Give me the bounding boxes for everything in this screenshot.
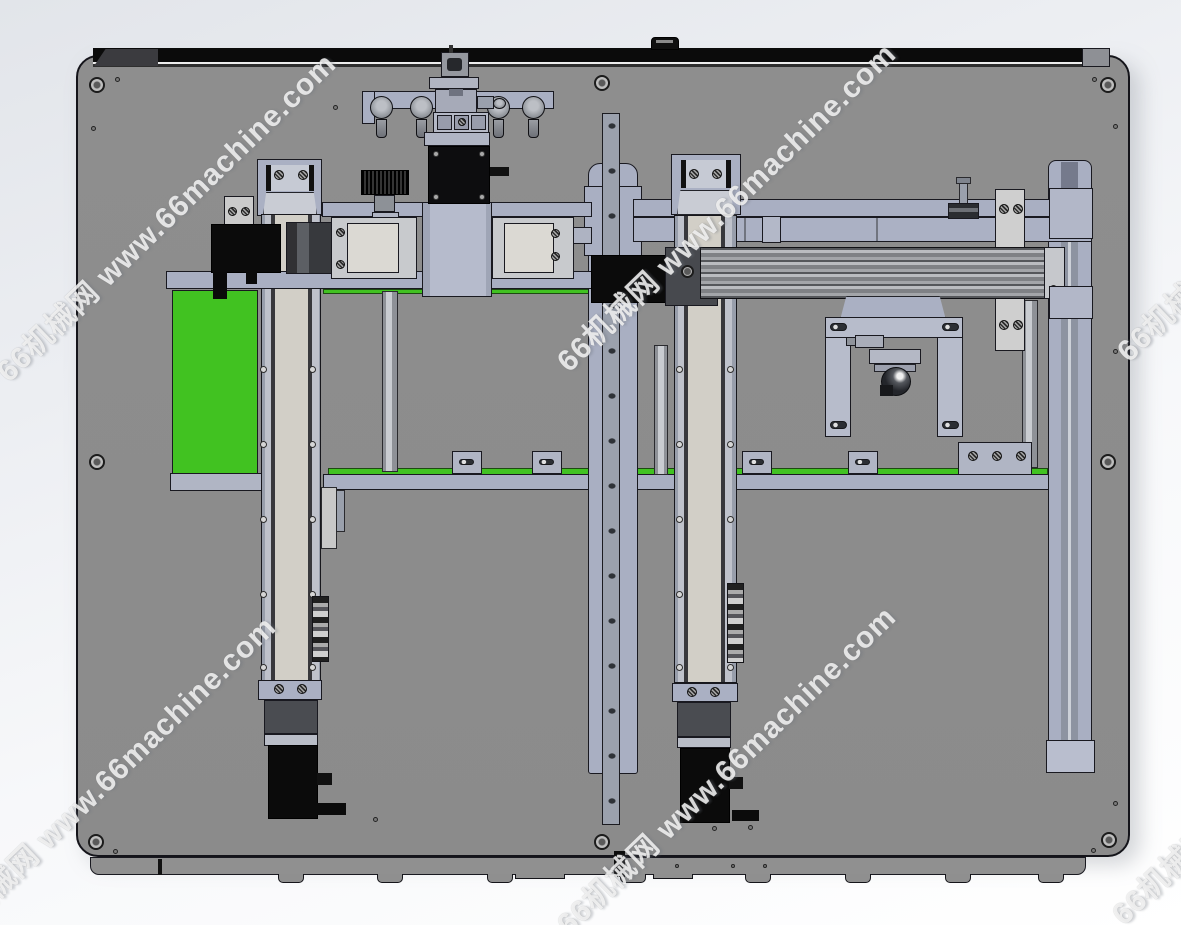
- sensor-strip: [727, 583, 744, 663]
- cap-screw: [274, 684, 284, 694]
- rail-hole: [727, 366, 734, 373]
- module-screw: [551, 252, 560, 261]
- adjuster-base: [372, 212, 399, 218]
- strip-lower-line: [93, 64, 1083, 67]
- column-bracket-upper: [1049, 188, 1093, 239]
- segment: [471, 115, 486, 130]
- motor-mount: [677, 702, 731, 737]
- motor-mount: [264, 700, 318, 734]
- micro-slide-knob: [846, 337, 856, 346]
- pin-hole: [1092, 77, 1097, 82]
- rail-hole: [260, 366, 267, 373]
- strip-right-block: [1082, 48, 1110, 67]
- module-screw: [336, 260, 345, 269]
- rail-hole: [309, 366, 316, 373]
- right-column-foot: [1046, 740, 1095, 773]
- rail-hole: [309, 516, 316, 523]
- support-post: [382, 291, 398, 472]
- segment-screw: [458, 118, 466, 126]
- pin-hole: [712, 826, 717, 831]
- segment: [437, 115, 452, 130]
- pin-hole: [748, 825, 753, 830]
- foot-slot: [855, 459, 870, 465]
- support-post: [654, 345, 668, 475]
- mount-tab: [377, 874, 403, 883]
- cap-screw: [710, 687, 720, 697]
- motor-screw: [433, 151, 439, 157]
- rail-hole: [731, 864, 735, 868]
- tower-bottom-cap: [258, 680, 322, 700]
- stepper-motor: [268, 745, 318, 819]
- stop-pin-cap: [956, 177, 971, 184]
- rail-hole: [727, 664, 734, 671]
- edge-screw: [1100, 454, 1116, 470]
- micro-slide: [855, 335, 884, 348]
- plunger-stem: [376, 119, 387, 138]
- mount-tab: [745, 874, 771, 883]
- plate-screw: [999, 320, 1009, 330]
- motor-connector: [317, 773, 332, 785]
- mount-strip: [515, 874, 565, 879]
- rail-seam: [744, 218, 746, 241]
- motor-screw: [433, 194, 439, 200]
- bracket-slot: [830, 421, 847, 429]
- plunger-knob: [410, 96, 433, 119]
- mini-motor-core: [447, 58, 462, 71]
- arm-cylinder: [493, 98, 506, 109]
- bracket-slot: [942, 421, 959, 429]
- belt-end-cap-bottom: [170, 473, 262, 491]
- shaft-coupling: [286, 222, 334, 274]
- block-screw: [274, 170, 284, 180]
- module-screw: [336, 228, 345, 237]
- pin-hole: [333, 105, 338, 110]
- motor-cable-rod: [732, 810, 759, 821]
- corner-screw: [1101, 832, 1117, 848]
- pin-clamp-band: [949, 208, 978, 212]
- rail-hole: [309, 441, 316, 448]
- mini-antenna: [449, 45, 453, 53]
- motor-screw: [479, 194, 485, 200]
- center-carriage-block: [422, 202, 492, 297]
- rail-hole: [676, 516, 683, 523]
- cap-screw: [297, 684, 307, 694]
- pin-hole: [1113, 801, 1118, 806]
- rail-hole: [260, 441, 267, 448]
- rail-hole: [763, 864, 767, 868]
- rail-hole: [727, 516, 734, 523]
- block-screw: [689, 169, 699, 179]
- column-bracket-lower: [1049, 286, 1093, 319]
- rail-hole: [676, 664, 683, 671]
- pin-hole: [1113, 124, 1118, 129]
- mount-strip: [653, 874, 693, 879]
- mount-tab: [945, 874, 971, 883]
- camera-connector: [880, 385, 893, 396]
- plunger-stem: [528, 119, 539, 138]
- rail-hole: [675, 864, 679, 868]
- rail-hole: [727, 441, 734, 448]
- cad-viewport: 66机械网 www.66machine.com 66机械网 www.66mach…: [0, 0, 1181, 925]
- pin-hole: [373, 817, 378, 822]
- flange-screw: [241, 207, 250, 216]
- pin-hole: [115, 77, 120, 82]
- motor-cable-rod: [490, 167, 509, 176]
- mount-tab: [1038, 874, 1064, 883]
- plate-screw: [1013, 320, 1023, 330]
- mount-tab: [278, 874, 304, 883]
- side-arm: [477, 96, 494, 109]
- sensor-strip: [312, 596, 329, 662]
- plunger-knob: [522, 96, 545, 119]
- pin-hole: [91, 126, 96, 131]
- rail-hole: [676, 366, 683, 373]
- foot-slot: [749, 459, 764, 465]
- rail-hole: [309, 664, 316, 671]
- center-slotted-bar: [602, 113, 620, 825]
- bracket-slot: [830, 323, 847, 331]
- rail-hole: [260, 516, 267, 523]
- clamp-screw: [968, 451, 978, 461]
- motor-nub: [246, 270, 257, 284]
- mount-tab: [487, 874, 513, 883]
- flange-screw: [228, 207, 237, 216]
- plunger-stem: [493, 119, 504, 138]
- head-plate: [429, 77, 479, 89]
- edge-screw: [594, 75, 610, 91]
- module-screw: [551, 229, 560, 238]
- tab-highlight: [656, 40, 673, 43]
- corner-screw: [89, 77, 105, 93]
- rail-joint-block: [762, 216, 781, 243]
- clamp-screw: [1016, 451, 1026, 461]
- knurled-adjuster: [361, 170, 409, 195]
- corner-screw: [88, 834, 104, 850]
- camera-mount-plate: [869, 349, 921, 364]
- slide-module-carriage: [347, 223, 399, 273]
- edge-screw: [594, 834, 610, 850]
- plate-screw: [1013, 204, 1023, 214]
- head-base-plate: [424, 132, 490, 146]
- pin-hole: [1091, 848, 1096, 853]
- tower-top-cap: [263, 192, 317, 215]
- tower-bottom-cap: [672, 683, 738, 702]
- tower-side-plate: [321, 487, 337, 549]
- corner-screw: [1100, 77, 1116, 93]
- bracket-slot: [942, 323, 959, 331]
- pin-hole: [113, 849, 118, 854]
- gantry-motor: [211, 224, 281, 273]
- foot-slot: [539, 459, 554, 465]
- rail-hole: [260, 664, 267, 671]
- motor-screw: [479, 151, 485, 157]
- rail-hole: [676, 441, 683, 448]
- foot-slot: [459, 459, 474, 465]
- motor-foot: [213, 272, 227, 299]
- cap-screw: [687, 687, 697, 697]
- right-column-channel-line: [1068, 162, 1071, 771]
- rail-hole: [676, 591, 683, 598]
- plate-screw: [999, 204, 1009, 214]
- rail-hole: [260, 591, 267, 598]
- adjuster-stem: [374, 195, 395, 212]
- plunger-knob: [370, 96, 393, 119]
- gantry-beam-extrusion: [700, 247, 1046, 299]
- link-block: [573, 227, 592, 244]
- motor-cable-rod: [317, 803, 346, 815]
- strip-top-tab: [651, 37, 679, 50]
- block-screw: [298, 170, 308, 180]
- slide-module-carriage: [504, 223, 554, 273]
- edge-tick: [158, 859, 162, 875]
- edge-screw: [89, 454, 105, 470]
- rail-seam: [876, 218, 878, 241]
- mount-tab: [845, 874, 871, 883]
- green-belt-plate: [172, 290, 258, 474]
- clamp-screw: [992, 451, 1002, 461]
- mechanism-notch: [449, 89, 463, 96]
